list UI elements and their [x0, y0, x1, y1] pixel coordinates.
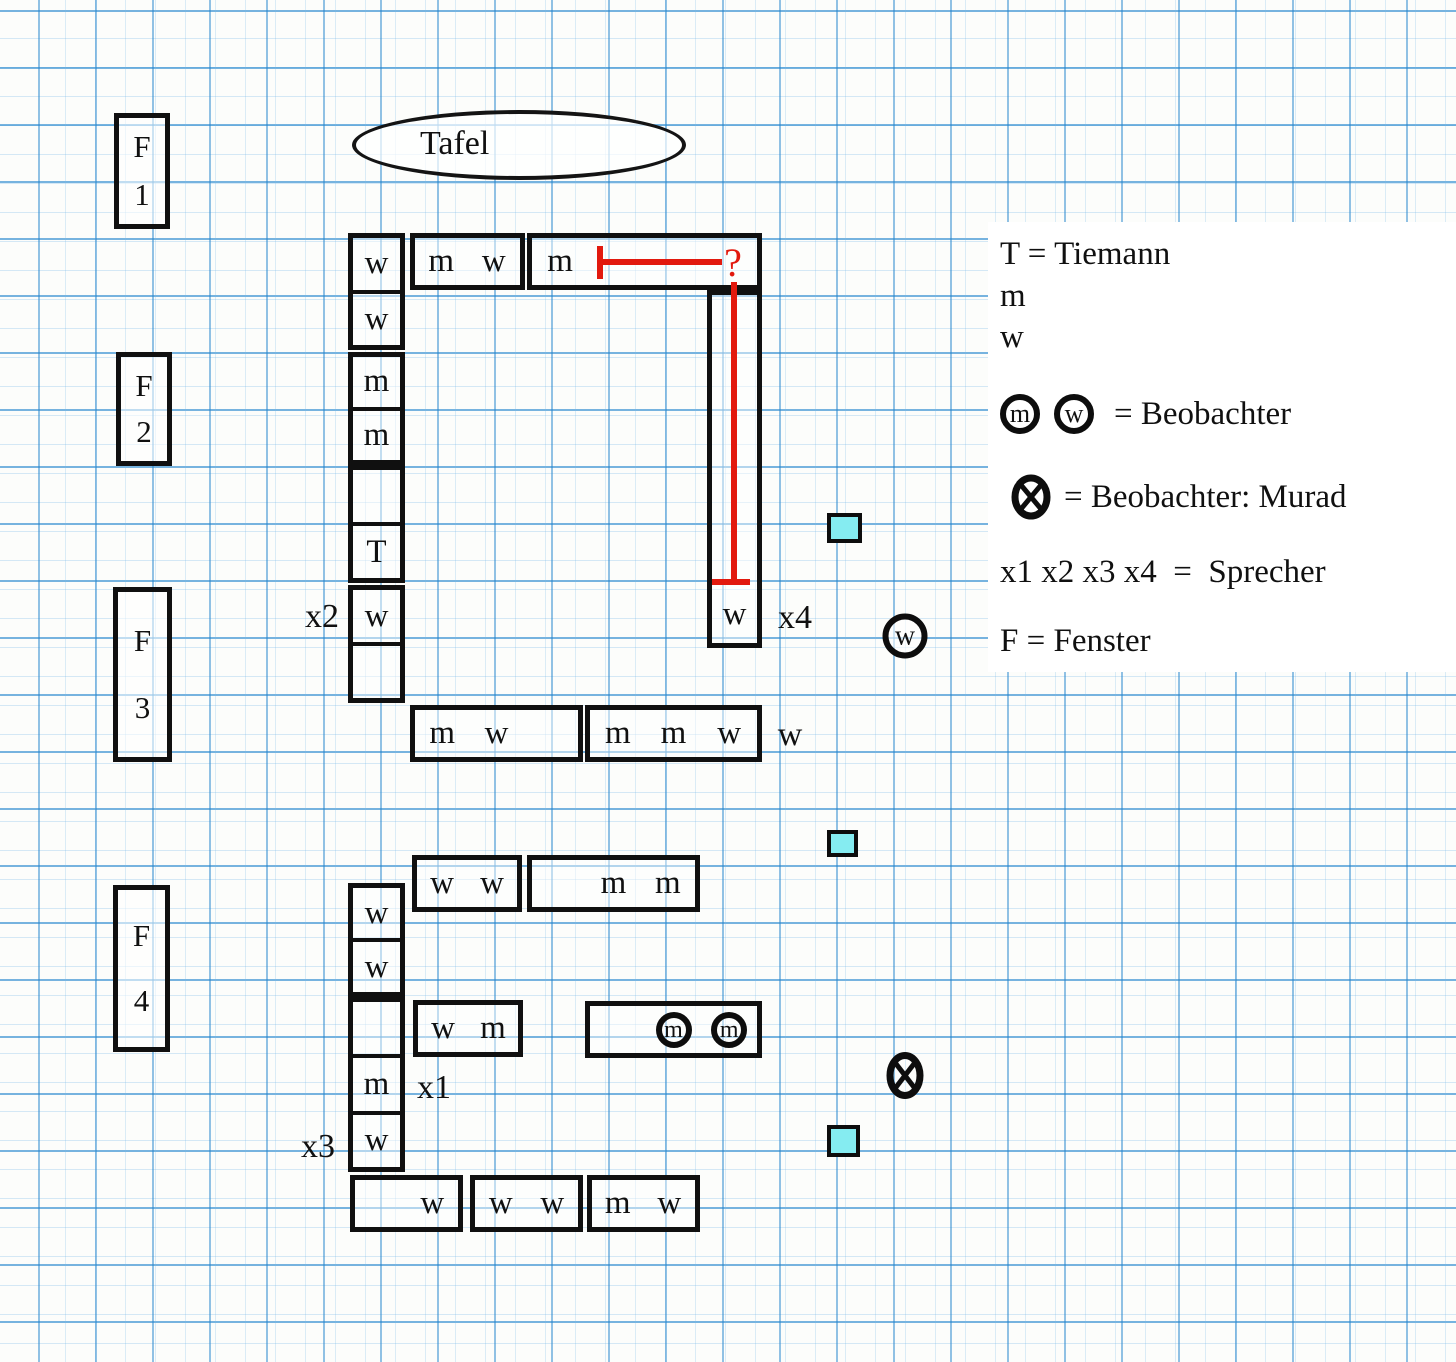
seat-m: m: [353, 357, 400, 407]
seat-w: w: [353, 590, 400, 642]
desk: T: [348, 465, 405, 583]
legend-tiemann: T = Tiemann: [1000, 236, 1170, 273]
seat-w: w: [418, 1005, 468, 1052]
desk: mw: [410, 705, 583, 762]
red-line-left-tick: [597, 246, 603, 279]
cyan-square-marker: [827, 513, 862, 543]
label-x1: x1: [417, 1071, 451, 1105]
label-w: w: [778, 718, 803, 752]
seat-m: m: [415, 710, 469, 757]
desk: mw: [410, 233, 525, 290]
circled-x-observer-icon: [885, 1051, 925, 1106]
desk: mm: [585, 1001, 762, 1058]
circled-w-icon: w: [1054, 394, 1094, 434]
legend-murad-row: = Beobachter: Murad: [1010, 473, 1347, 521]
red-line-bottom-tick: [712, 579, 750, 585]
window-F2: F2: [116, 352, 172, 466]
legend-w: w: [1000, 319, 1024, 356]
seat-empty: [524, 710, 578, 757]
seat-m: m: [646, 1006, 702, 1053]
seat-m: m: [592, 1180, 644, 1227]
label-x3: x3: [301, 1130, 335, 1164]
seat-w: w: [469, 710, 523, 757]
window-number: 4: [134, 983, 150, 1019]
graph-paper: [0, 0, 1456, 1362]
seat-m: m: [641, 860, 695, 907]
red-question-mark: ?: [724, 243, 742, 283]
seat-T: T: [353, 522, 400, 578]
seat-m: m: [646, 710, 702, 757]
window-letter: F: [133, 918, 150, 954]
label-x2: x2: [305, 600, 339, 634]
legend-beobachter-label: = Beobachter: [1114, 396, 1291, 433]
circled-x-icon: [1010, 473, 1052, 521]
seat-w: w: [353, 290, 400, 346]
seat-m: m: [590, 710, 646, 757]
seat-m: m: [701, 1006, 757, 1053]
grid-vertical-lines: [38, 0, 1456, 1362]
seat-w: w: [701, 710, 757, 757]
desk: mw: [587, 1175, 700, 1232]
window-letter: F: [133, 129, 150, 165]
window-F4: F4: [113, 885, 170, 1052]
circled-m-icon: m: [711, 1012, 747, 1048]
legend-murad-label: = Beobachter: Murad: [1064, 479, 1347, 516]
desk: mm: [527, 855, 700, 912]
red-line-horizontal: [600, 259, 722, 265]
seat-w: w: [353, 1111, 400, 1167]
desk: w: [350, 1175, 463, 1232]
legend-m: m: [1000, 278, 1026, 315]
window-number: 1: [134, 177, 150, 213]
desk: ww: [348, 883, 405, 997]
cyan-square-marker: [827, 830, 858, 857]
seat-m: m: [353, 1054, 400, 1110]
seat-m: m: [353, 407, 400, 461]
blackboard-ellipse: Tafel: [352, 110, 686, 180]
legend-fenster: F = Fenster: [1000, 623, 1151, 660]
seat-w: w: [467, 860, 517, 907]
window-F1: F1: [114, 113, 170, 229]
seat-w: w: [468, 238, 521, 285]
seat-w: w: [407, 1180, 459, 1227]
desk: ww: [348, 233, 405, 350]
blackboard-label: Tafel: [420, 125, 489, 163]
desk: mw: [348, 997, 405, 1172]
seat-w: w: [644, 1180, 696, 1227]
seat-w: w: [353, 238, 400, 290]
seat-m: m: [468, 1005, 518, 1052]
cyan-square-marker: [827, 1125, 860, 1157]
label-x4: x4: [778, 601, 812, 635]
desk: mm: [348, 352, 405, 465]
circled-m-icon: m: [1000, 394, 1040, 434]
desk: ww: [412, 855, 522, 912]
seat-empty: [353, 642, 400, 698]
desk: w: [348, 585, 405, 703]
seat-w: w: [353, 938, 400, 992]
seat-m: m: [586, 860, 640, 907]
seat-empty: [353, 470, 400, 522]
seat-m: m: [532, 238, 588, 285]
desk: ww: [470, 1175, 583, 1232]
seat-w: w: [353, 888, 400, 938]
red-line-vertical: [731, 282, 737, 582]
circled-m-icon: m: [656, 1012, 692, 1048]
seat-w: w: [712, 585, 757, 643]
desk: mmw: [585, 705, 762, 762]
seat-empty: [590, 1006, 646, 1053]
legend-panel: T = Tiemann m w m w = Beobachter = Beoba…: [988, 222, 1456, 672]
window-letter: F: [134, 623, 151, 659]
legend-beobachter-row: m w = Beobachter: [1000, 394, 1291, 434]
desk: wm: [413, 1000, 523, 1057]
seat-m: m: [415, 238, 468, 285]
circled-w-observer-icon: w: [883, 614, 928, 659]
window-number: 3: [135, 690, 151, 726]
window-letter: F: [135, 368, 152, 404]
window-number: 2: [136, 414, 152, 450]
seat-empty: [355, 1180, 407, 1227]
seat-empty: [353, 1002, 400, 1054]
legend-sprecher: x1 x2 x3 x4 = Sprecher: [1000, 554, 1326, 591]
seat-w: w: [475, 1180, 527, 1227]
seat-w: w: [417, 860, 467, 907]
window-F3: F3: [113, 587, 172, 762]
seat-w: w: [527, 1180, 579, 1227]
seat-empty: [532, 860, 586, 907]
